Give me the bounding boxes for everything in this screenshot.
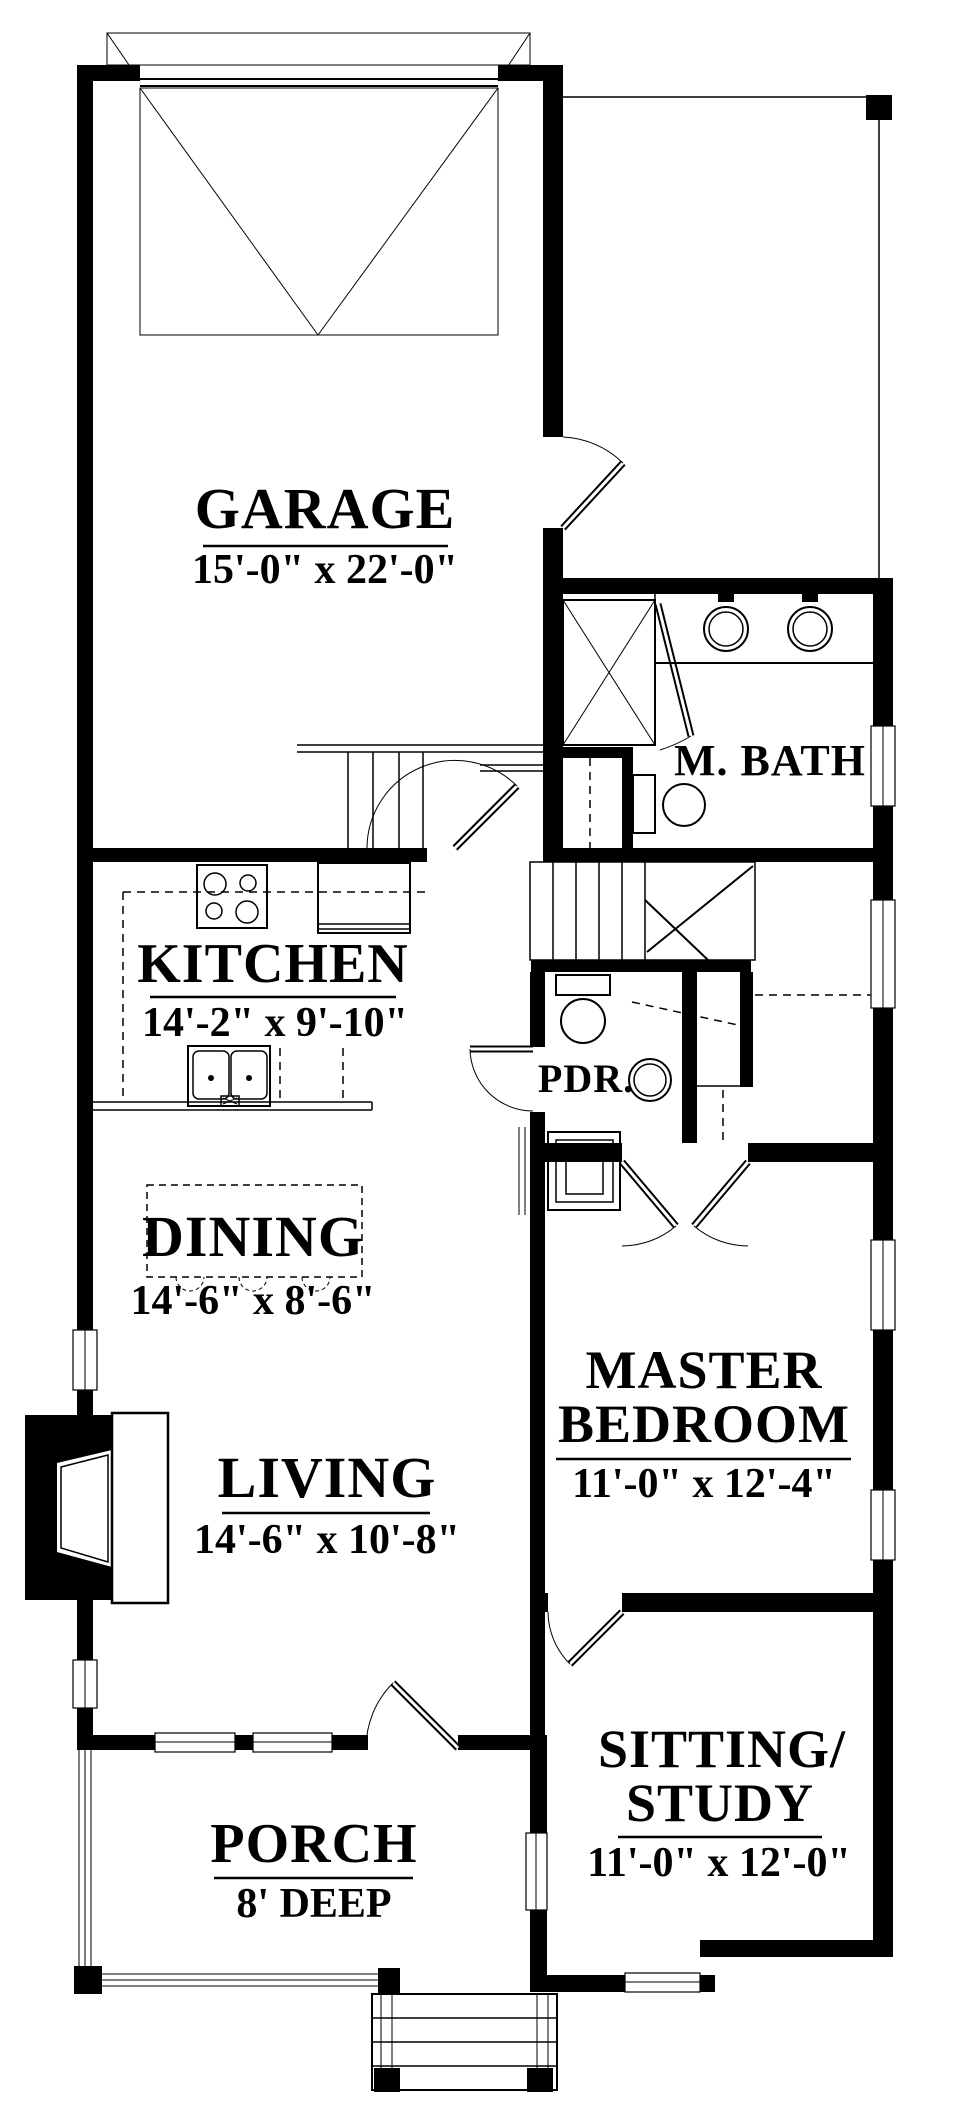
master-bath-label: M. BATH [674,736,866,785]
step-post [374,2068,400,2092]
stove [197,865,267,928]
patio-post [866,95,892,120]
window [155,1733,235,1752]
master-bedroom-label-1: MASTER [585,1340,822,1400]
fireplace [25,1413,168,1603]
vanity-double-sinks [655,594,873,663]
powder-room-door [470,1049,533,1111]
porch-corner-post [74,1966,102,1994]
floor-plan-page: GARAGE 15'-0" x 22'-0" M. BATH KITCHEN 1… [0,0,956,2122]
window [871,1490,895,1560]
floor-plan-drawing: GARAGE 15'-0" x 22'-0" M. BATH KITCHEN 1… [0,0,956,2122]
kitchen-label: KITCHEN [137,933,409,995]
porch-steps [372,1994,557,2092]
window [253,1733,332,1752]
garage-dims: 15'-0" x 22'-0" [192,547,458,593]
hall-door [367,760,517,848]
room-labels: GARAGE 15'-0" x 22'-0" M. BATH KITCHEN 1… [131,476,866,1927]
window [871,1240,895,1330]
living-dims: 14'-6" x 10'-8" [194,1517,460,1563]
window [871,900,895,1008]
window [871,726,895,806]
hearth [112,1413,168,1603]
kitchen-dims: 14'-2" x 9'-10" [142,1000,408,1046]
master-bedroom-label-2: BEDROOM [558,1394,850,1454]
dining-label: DINING [142,1204,364,1269]
shower [563,600,655,745]
sitting-room-door [548,1612,622,1664]
stairs-down [530,862,755,960]
powder-sink [629,1059,671,1101]
refrigerator [318,863,410,933]
sitting-study-label-2: STUDY [626,1773,814,1833]
window [526,1833,547,1910]
powder-room-label: PDR. [538,1056,634,1101]
kitchen-sink [188,1046,270,1106]
window [73,1660,97,1708]
porch-post [378,1968,400,1994]
front-door [366,1683,458,1748]
garage-label: GARAGE [195,476,456,541]
window [625,1973,700,1992]
garage-door [107,33,530,335]
porch-dims: 8' DEEP [236,1881,391,1927]
master-bedroom-dims: 11'-0" x 12'-4" [572,1461,836,1507]
porch-label: PORCH [210,1813,417,1875]
master-double-doors [622,1162,748,1246]
step-post [527,2068,553,2092]
sitting-study-label-1: SITTING/ [598,1719,846,1779]
patio-outline [563,97,879,578]
powder-toilet [556,975,610,1043]
living-label: LIVING [218,1445,437,1510]
dining-dims: 14'-6" x 8'-6" [131,1278,376,1324]
sitting-study-dims: 11'-0" x 12'-0" [587,1840,851,1886]
garage-side-door [563,437,623,528]
shower-door [658,604,691,750]
window [73,1330,97,1390]
